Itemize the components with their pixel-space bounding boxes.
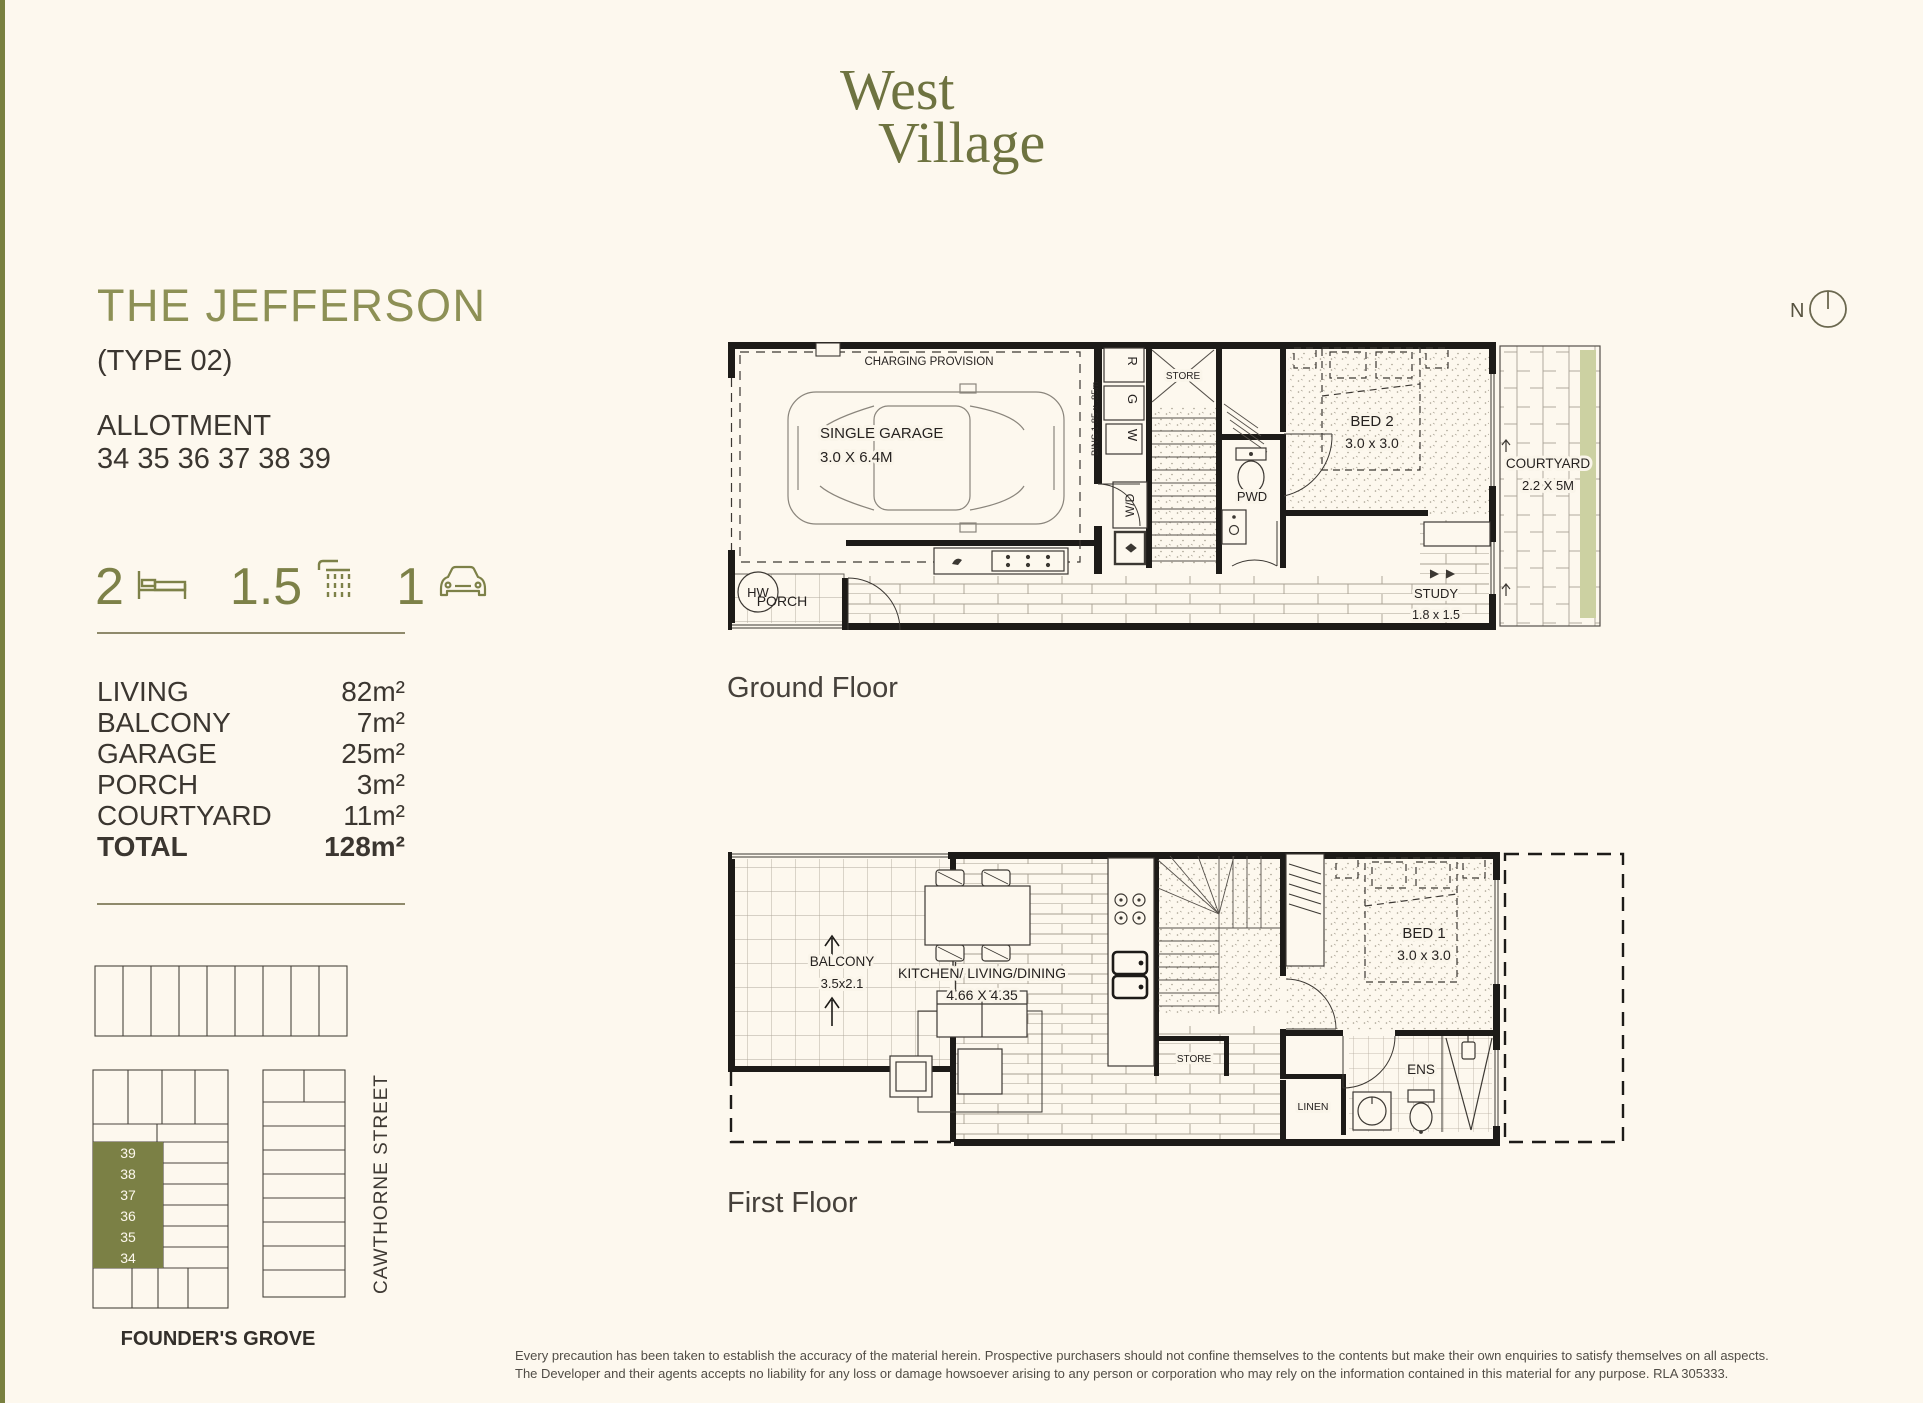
bath-count: 1.5 — [230, 561, 302, 613]
kitchen-living-size: 4.66 X 4.35 — [946, 987, 1018, 1003]
bins-label: BINS 1.85 x .85m — [1090, 381, 1101, 456]
bed1-label: BED 1 — [1402, 925, 1445, 942]
pwd-fixtures — [1222, 448, 1277, 566]
divider-top — [97, 632, 405, 634]
wd-label: W/D — [1123, 493, 1137, 517]
lot-number: 39 — [120, 1145, 136, 1161]
area-row-porch: PORCH 3m² — [97, 769, 405, 800]
highlighted-lots: 39 38 37 36 35 34 — [93, 1142, 163, 1268]
store-label: STORE — [1166, 371, 1201, 382]
car-count: 1 — [396, 561, 425, 613]
north-label: N — [1790, 300, 1804, 322]
kitchenette-bench — [934, 548, 1068, 574]
lot-number: 36 — [120, 1208, 136, 1224]
area-value: 7m² — [357, 707, 405, 738]
area-table: LIVING 82m² BALCONY 7m² GARAGE 25m² PORC… — [97, 676, 405, 862]
area-value: 82m² — [341, 676, 405, 707]
brand-logo-line2: Village — [878, 118, 1100, 168]
bed1-robe — [1286, 854, 1324, 966]
area-label: BALCONY — [97, 707, 231, 738]
page-subtitle: (TYPE 02) — [97, 345, 232, 378]
garage-size: 3.0 X 6.4M — [820, 449, 893, 466]
area-row-living: LIVING 82m² — [97, 676, 405, 707]
area-value: 11m² — [343, 800, 405, 831]
street-label: CAWTHORNE STREET — [371, 1074, 392, 1294]
allotment-label: ALLOTMENT — [97, 410, 271, 443]
area-row-garage: GARAGE 25m² — [97, 738, 405, 769]
area-value: 25m² — [341, 738, 405, 769]
site-block-east — [263, 1070, 345, 1297]
area-label: PORCH — [97, 769, 198, 800]
ens-label: ENS — [1407, 1062, 1435, 1077]
area-label: GARAGE — [97, 738, 217, 769]
store-label: STORE — [1177, 1054, 1212, 1065]
site-block-north — [95, 966, 347, 1036]
ground-floor-caption: Ground Floor — [727, 672, 898, 705]
lot-number: 37 — [120, 1187, 136, 1203]
study-label: STUDY — [1414, 586, 1458, 601]
bed1-size: 3.0 x 3.0 — [1397, 947, 1451, 963]
stats-row: 2 1.5 1 — [95, 558, 489, 613]
disclaimer-line1: Every precaution has been taken to estab… — [515, 1347, 1769, 1365]
bed2-label: BED 2 — [1350, 413, 1393, 430]
first-floor-caption: First Floor — [727, 1187, 858, 1220]
area-label: COURTYARD — [97, 800, 272, 831]
area-row-balcony: BALCONY 7m² — [97, 707, 405, 738]
lot-number: 38 — [120, 1166, 136, 1182]
charging-label: CHARGING PROVISION — [864, 356, 993, 368]
lot-number: 35 — [120, 1229, 136, 1245]
kitchen-living-label: KITCHEN/ LIVING/DINING — [898, 965, 1066, 981]
disclaimer-line2: The Developer and their agents accepts n… — [515, 1365, 1769, 1383]
bed2-carpet — [1288, 346, 1492, 514]
area-label: LIVING — [97, 676, 189, 707]
courtyard-label: COURTYARD — [1506, 456, 1591, 471]
bed-icon — [136, 568, 188, 607]
hall-floorboards — [846, 576, 1492, 626]
north-indicator: N — [1778, 276, 1862, 340]
site-map: 39 38 37 36 35 34 CAWTHORNE STREET FOUND… — [85, 952, 425, 1362]
shower-icon — [314, 558, 354, 607]
bin-w-label: W — [1125, 429, 1140, 442]
balcony-label: BALCONY — [810, 954, 875, 969]
brand-logo: West Village — [840, 62, 1100, 168]
bed-count: 2 — [95, 561, 124, 613]
area-value: 128m² — [324, 831, 405, 862]
car-icon — [437, 564, 489, 607]
balcony-size: 3.5x2.1 — [821, 976, 864, 991]
area-row-courtyard: COURTYARD 11m² — [97, 800, 405, 831]
bin-r-label: R — [1125, 356, 1140, 365]
garage-label: SINGLE GARAGE — [820, 425, 943, 442]
first-floor-plan: BALCONY 3.5x2.1 KITCHEN/ LIVING/DINING 4… — [724, 844, 1629, 1164]
accent-side-bar — [0, 0, 5, 1403]
grove-label: FOUNDER'S GROVE — [121, 1328, 316, 1350]
courtyard-hedge — [1580, 350, 1596, 618]
area-value: 3m² — [357, 769, 405, 800]
disclaimer: Every precaution has been taken to estab… — [515, 1347, 1769, 1383]
area-row-total: TOTAL 128m² — [97, 831, 405, 862]
divider-bottom — [97, 903, 405, 905]
kitchen-fixtures — [1108, 858, 1154, 1066]
linen-label: LINEN — [1298, 1101, 1329, 1113]
pwd-label: PWD — [1237, 489, 1267, 504]
stair-carpet — [1150, 404, 1216, 566]
page-title: THE JEFFERSON — [97, 280, 487, 332]
study-size: 1.8 x 1.5 — [1412, 608, 1460, 622]
lot-number: 34 — [120, 1250, 136, 1266]
bed2-size: 3.0 x 3.0 — [1345, 435, 1399, 451]
ground-floor-plan: CHARGING PROVISION SINGLE GARAGE 3.0 X 6… — [724, 334, 1629, 644]
area-label: TOTAL — [97, 831, 188, 862]
garage-zone — [740, 343, 1080, 562]
bin-g-label: G — [1125, 394, 1140, 404]
porch-label: PORCH — [757, 593, 808, 609]
courtyard-size: 2.2 X 5M — [1522, 478, 1574, 493]
allotment-numbers: 34 35 36 37 38 39 — [97, 443, 331, 476]
